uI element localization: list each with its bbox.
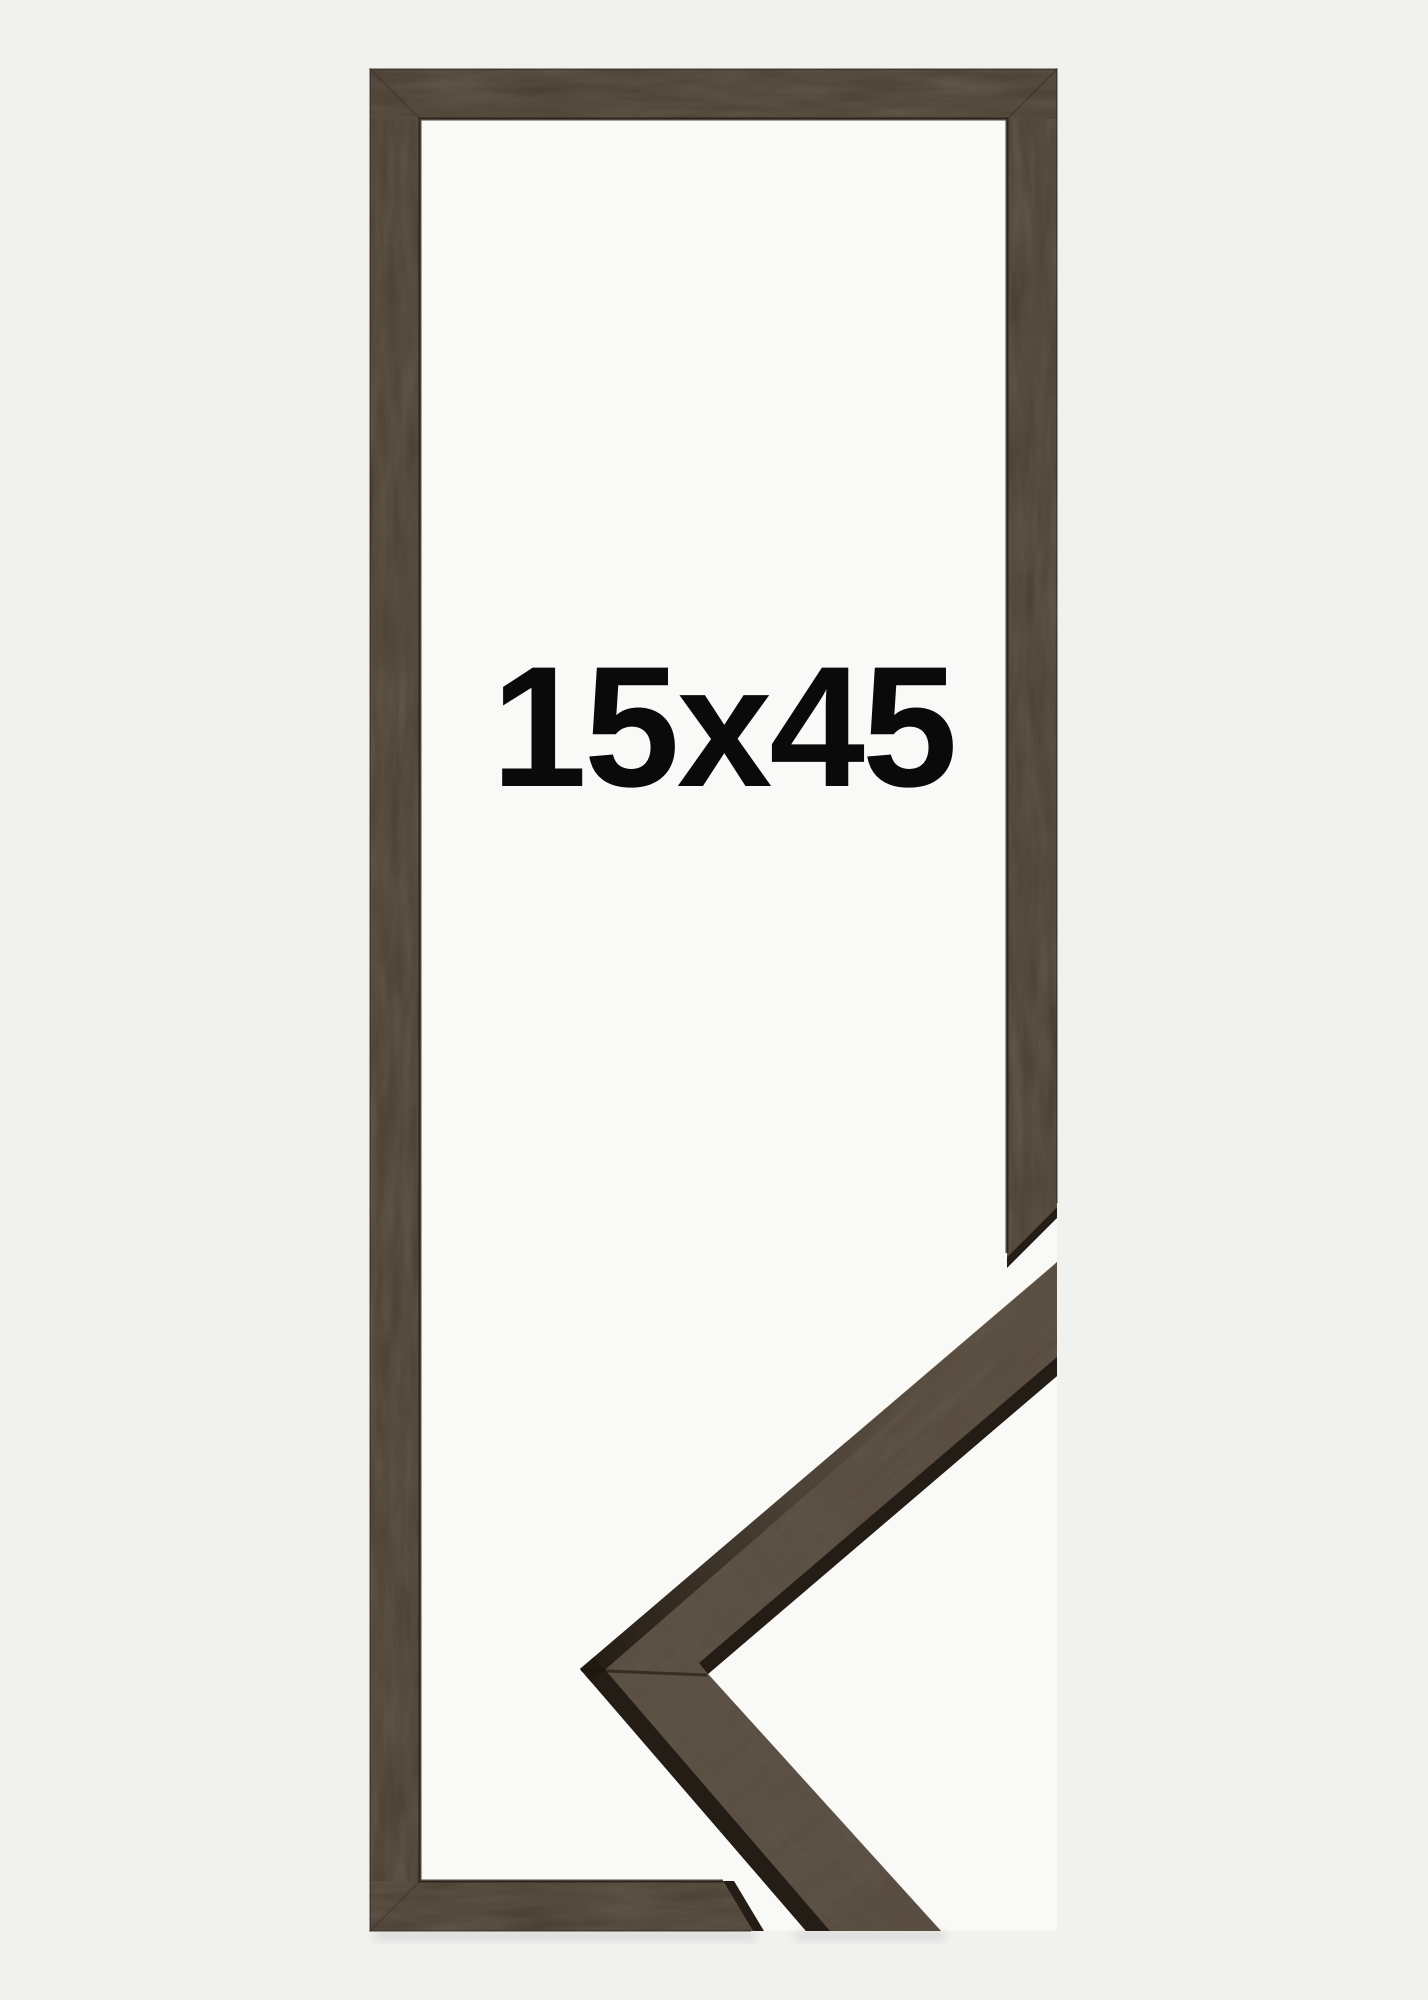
frame-bottom-bar [370,1881,764,1931]
product-image[interactable]: 15x45 [0,0,1428,2000]
frame-top-bar [370,69,1057,119]
size-label: 15x45 [491,631,954,823]
frame-product-photo: 15x45 [0,0,1428,2000]
frame-left-bar [370,69,420,1931]
frame-right-bar [1007,69,1057,1268]
soft-shadow [374,1931,945,1940]
